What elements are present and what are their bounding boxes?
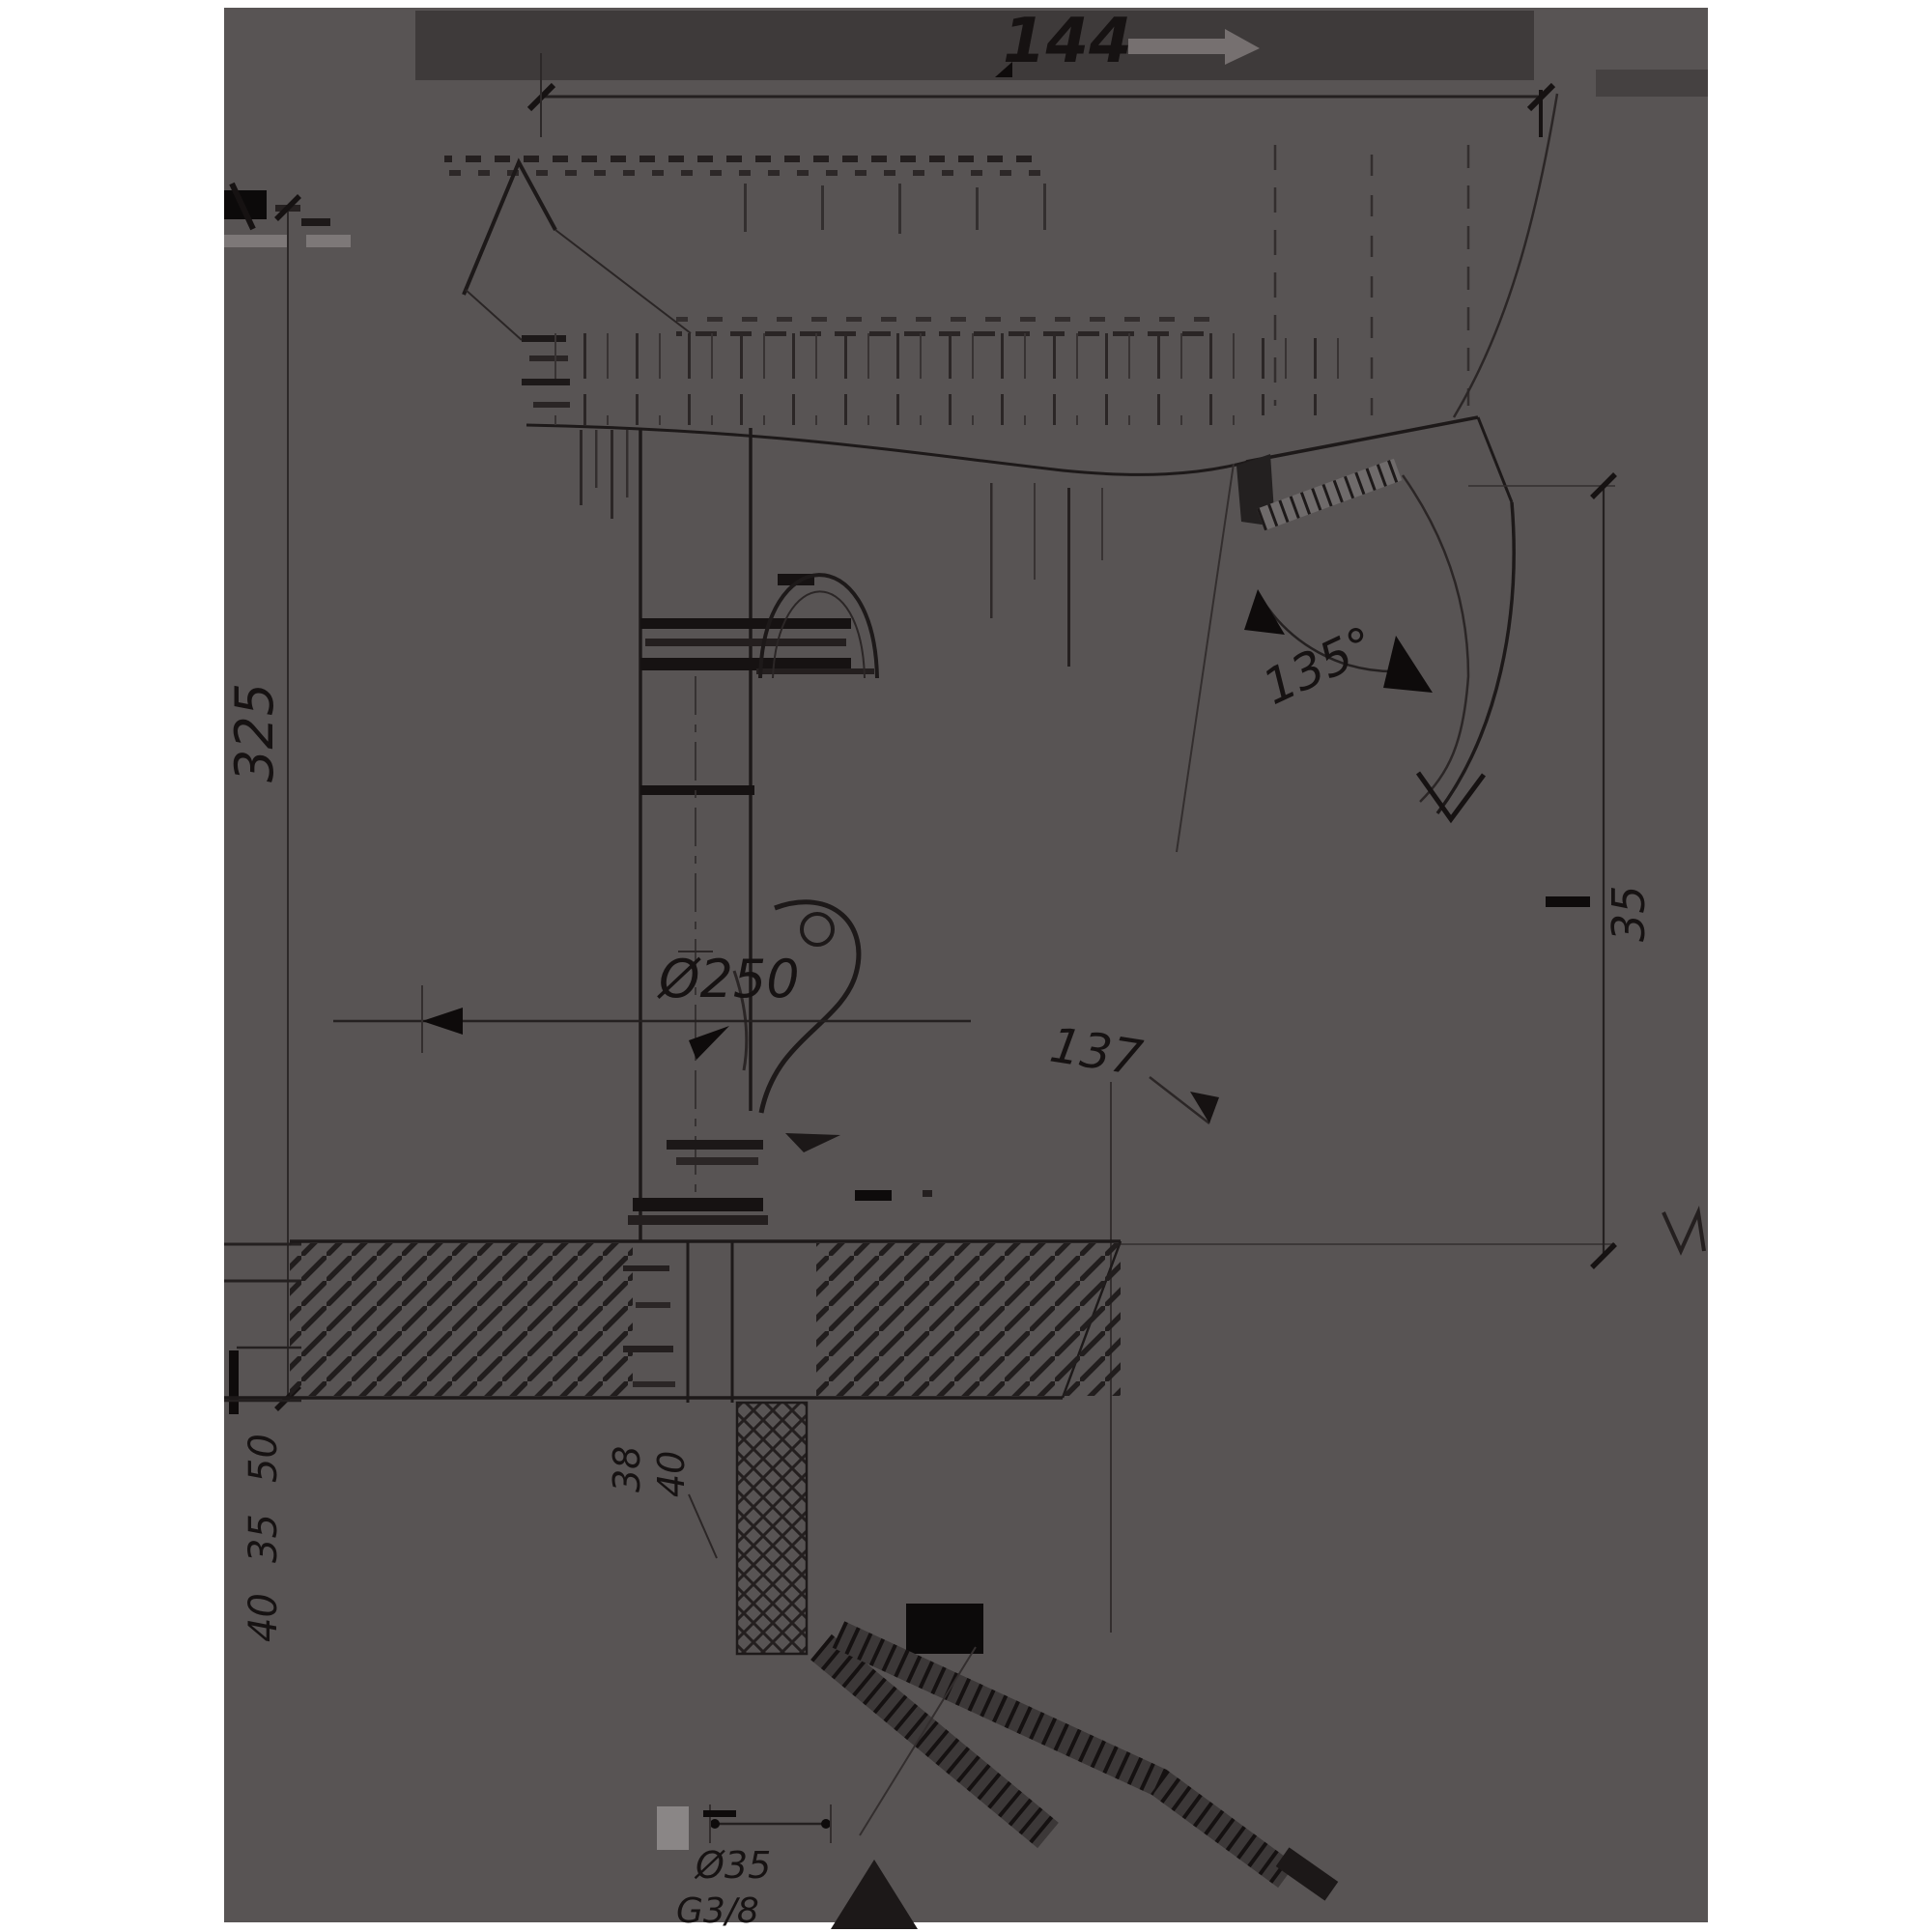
dim-label-right-height: 35 <box>1603 885 1655 942</box>
deck-hatch-left <box>290 1243 633 1396</box>
dim-label-bottom-hole: Ø35 <box>694 1844 771 1887</box>
dim-label-shank-1: 40 <box>650 1451 693 1497</box>
dim-label-shank-0: 38 <box>606 1446 648 1492</box>
dim-label-top-width: 144 <box>1003 6 1132 77</box>
dim-label-overall-height: 325 <box>224 683 285 782</box>
deck-hatch-right <box>816 1243 1121 1396</box>
dim-label-bottom-thread: G3/8 <box>676 1891 759 1931</box>
dim-label-left-stack-1: 35 <box>241 1514 286 1563</box>
hose-block <box>906 1604 983 1654</box>
drawing-page: 144 <box>0 0 1932 1932</box>
threaded-shank <box>737 1403 807 1654</box>
faucet-technical-drawing: 144 <box>0 0 1932 1932</box>
top-dark-band <box>415 11 1534 80</box>
dim-label-base-diameter: Ø250 <box>657 949 800 1009</box>
dim-label-left-stack-0: 50 <box>241 1434 286 1483</box>
dim-label-left-stack-2: 40 <box>241 1593 286 1642</box>
